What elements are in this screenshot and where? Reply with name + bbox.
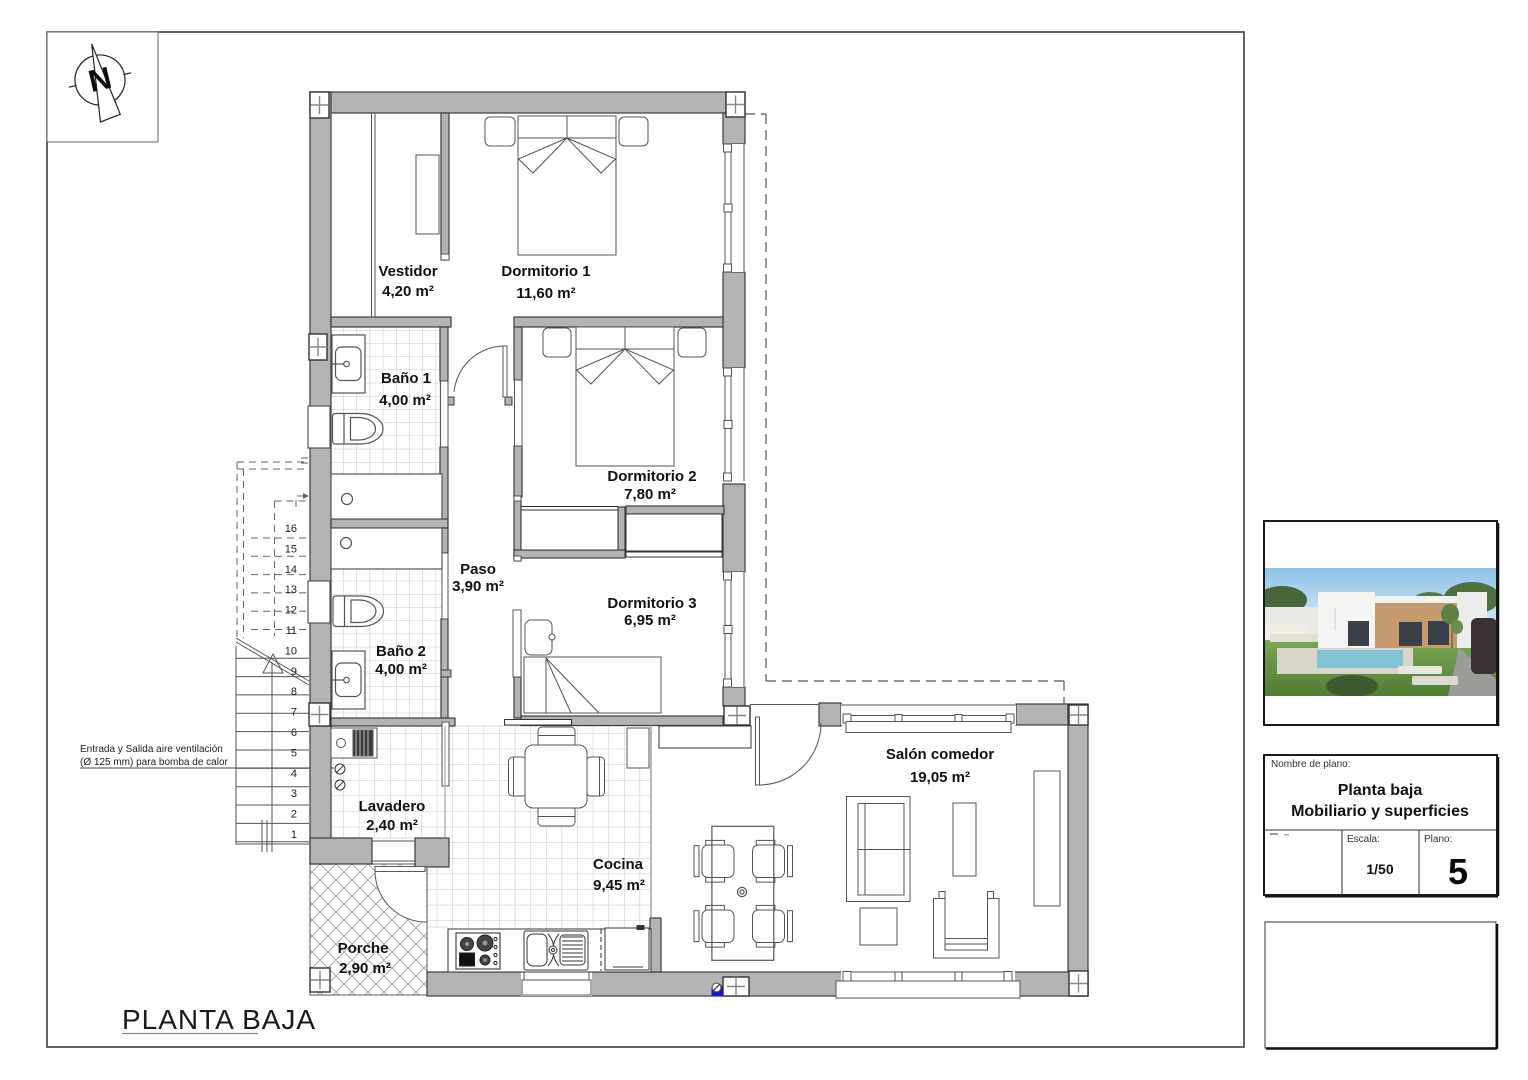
svg-text:7: 7 xyxy=(291,707,297,719)
svg-text:Vestidor: Vestidor xyxy=(378,263,437,280)
svg-text:11,60 m²: 11,60 m² xyxy=(516,285,575,302)
svg-text:Baño 1: Baño 1 xyxy=(381,370,431,387)
svg-text:Paso: Paso xyxy=(460,561,496,578)
svg-text:9,45 m²: 9,45 m² xyxy=(593,877,645,894)
svg-text:Nombre de plano:: Nombre de plano: xyxy=(1271,759,1351,770)
svg-text:4,00 m²: 4,00 m² xyxy=(379,392,431,409)
svg-text:8: 8 xyxy=(291,686,297,698)
svg-text:Baño 2: Baño 2 xyxy=(376,643,426,660)
svg-text:Planta baja: Planta baja xyxy=(1338,782,1423,799)
svg-text:Salón comedor: Salón comedor xyxy=(886,746,995,763)
svg-text:3: 3 xyxy=(291,788,297,800)
svg-text:Mobiliario y superficies: Mobiliario y superficies xyxy=(1291,803,1469,820)
svg-text:Dormitorio 2: Dormitorio 2 xyxy=(607,468,696,485)
svg-text:12: 12 xyxy=(285,605,297,617)
svg-text:15: 15 xyxy=(285,543,297,555)
svg-text:Plano:: Plano: xyxy=(1424,834,1452,845)
svg-text:6: 6 xyxy=(291,727,297,739)
svg-text:11: 11 xyxy=(286,625,297,637)
svg-text:2,90 m²: 2,90 m² xyxy=(339,960,391,977)
svg-text:Lavadero: Lavadero xyxy=(359,798,426,815)
svg-text:9: 9 xyxy=(291,666,297,678)
svg-text:Dormitorio 3: Dormitorio 3 xyxy=(607,595,696,612)
svg-text:4,00 m²: 4,00 m² xyxy=(375,661,427,678)
svg-text:5: 5 xyxy=(1448,851,1468,892)
svg-text:4: 4 xyxy=(291,768,297,780)
svg-text:Porche: Porche xyxy=(338,940,389,957)
svg-text:16: 16 xyxy=(285,523,297,535)
svg-text:1/50: 1/50 xyxy=(1366,861,1393,877)
svg-text:Entrada y Salida aire ventilac: Entrada y Salida aire ventilación xyxy=(80,744,223,755)
svg-text:Cocina: Cocina xyxy=(593,856,644,873)
svg-text:Escala:: Escala: xyxy=(1347,834,1380,845)
svg-text:7,80 m²: 7,80 m² xyxy=(624,486,676,503)
svg-text:19,05 m²: 19,05 m² xyxy=(910,769,970,786)
svg-text:3,90 m²: 3,90 m² xyxy=(452,578,504,595)
svg-text:6,95 m²: 6,95 m² xyxy=(624,612,676,629)
svg-text:2: 2 xyxy=(291,809,297,821)
svg-text:(Ø 125 mm) para bomba de calor: (Ø 125 mm) para bomba de calor xyxy=(80,757,229,768)
svg-text:13: 13 xyxy=(285,584,297,596)
svg-text:5: 5 xyxy=(291,747,297,759)
svg-text:10: 10 xyxy=(285,645,297,657)
svg-text:Dormitorio 1: Dormitorio 1 xyxy=(501,263,590,280)
svg-text:PLANTA BAJA: PLANTA BAJA xyxy=(122,1004,316,1035)
svg-text:14: 14 xyxy=(285,564,297,576)
svg-text:2,40 m²: 2,40 m² xyxy=(366,817,418,834)
svg-text:4,20 m²: 4,20 m² xyxy=(382,283,434,300)
svg-text:1: 1 xyxy=(291,829,297,841)
